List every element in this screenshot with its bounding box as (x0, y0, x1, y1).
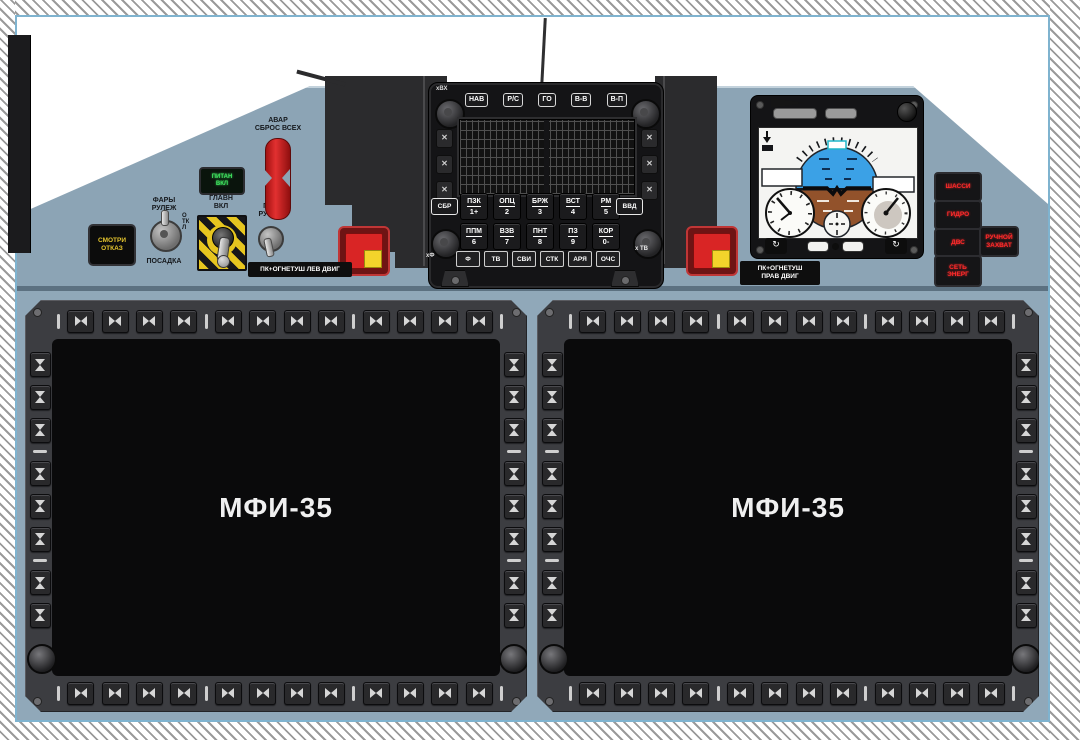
cage-knob-left[interactable]: ↻ (765, 238, 787, 254)
hud-support-rod (540, 18, 547, 86)
bezel-pin (57, 314, 60, 329)
bezel-pin (545, 450, 559, 453)
mode-button-vp[interactable]: В-П (607, 93, 627, 107)
instrument-knob[interactable] (897, 102, 917, 122)
bezel-button-glyph-icon (734, 316, 746, 326)
toggle-pill[interactable] (807, 241, 829, 252)
mfd-bezel-button[interactable] (978, 310, 1005, 333)
function-key-row: Ф ТВ СВИ СТК АРЯ ОЧС (456, 251, 620, 267)
label-xf: хФ (426, 253, 434, 259)
mfd-bezel-button[interactable] (136, 310, 163, 333)
bezel-button-glyph-icon (882, 688, 894, 698)
bezel-button-glyph-icon (75, 316, 87, 326)
fire-button-yellow-square (712, 250, 730, 268)
mfd-bezel-button[interactable] (30, 570, 51, 595)
emergency-jettison-handle[interactable] (262, 138, 292, 218)
select-button[interactable]: ✕ (641, 129, 658, 148)
mfd-bezel-button[interactable] (682, 310, 709, 333)
bezel-button-glyph-icon (587, 316, 599, 326)
mfd-bezel-button[interactable] (579, 682, 606, 705)
bezel-button-glyph-icon (916, 688, 928, 698)
bezel-pin (33, 559, 47, 562)
mfd-bezel-button[interactable] (102, 682, 129, 705)
bezel-button-glyph-icon (1021, 359, 1031, 371)
frame-border-right (1050, 0, 1080, 740)
screw (545, 697, 554, 706)
mfd-bezel-button[interactable] (542, 494, 563, 519)
mfd-display-right: МФИ-35 (537, 300, 1039, 712)
attitude-clock-altimeter-graphic (759, 128, 917, 238)
master-caution-label: СМОТРИ (98, 237, 126, 245)
keyboard-knob-mid-right[interactable] (633, 229, 663, 259)
fn-key-f[interactable]: Ф (456, 251, 480, 267)
fn-key-stk[interactable]: СТК (540, 251, 564, 267)
mfd-bezel-button[interactable] (504, 570, 525, 595)
bezel-button-glyph-icon (35, 533, 45, 545)
bezel-pin (717, 314, 720, 329)
mfd-bezel-button[interactable] (170, 310, 197, 333)
bezel-button-glyph-icon (803, 316, 815, 326)
fire-button-yellow-square (364, 250, 382, 268)
bezel-button-glyph-icon (837, 688, 849, 698)
landing-lights-switch-hub (160, 230, 168, 238)
mfd-bezel-button[interactable] (830, 310, 857, 333)
bezel-button-glyph-icon (178, 688, 190, 698)
bezel-button-glyph-icon (769, 688, 781, 698)
mfd-knob-left[interactable] (539, 644, 569, 674)
mfd-bezel-button[interactable] (727, 310, 754, 333)
bezel-pin (545, 559, 559, 562)
select-button[interactable]: ✕ (436, 129, 453, 148)
mfd-bezel-button[interactable] (67, 310, 94, 333)
bottom-toggle-group (807, 241, 864, 252)
mfd-bezel-button[interactable] (943, 310, 970, 333)
bezel-button-glyph-icon (547, 533, 557, 545)
fire-right-label: ПК+ОГНЕТУШПРАВ ДВИГ (740, 261, 820, 285)
screw (33, 308, 42, 317)
bezel-button-glyph-icon (439, 316, 451, 326)
bezel-button-glyph-icon (1021, 609, 1031, 621)
bezel-button-glyph-icon (404, 316, 416, 326)
bezel-pin (57, 686, 60, 701)
bezel-button-glyph-icon (882, 316, 894, 326)
knob-center (640, 108, 648, 116)
mfd-knob-right[interactable] (1011, 644, 1041, 674)
mfd-bezel-button[interactable] (30, 418, 51, 443)
handle-notch (282, 169, 290, 187)
warning-light-5: РУЧНОЙЗАХВАТ (979, 226, 1019, 257)
mfd-bezel-button[interactable] (215, 310, 242, 333)
mfd-bezel-button[interactable] (30, 461, 51, 486)
bezel-button-glyph-icon (509, 468, 519, 480)
bezel-button-glyph-icon (509, 577, 519, 589)
bezel-pin (569, 314, 572, 329)
bezel-button-glyph-icon (547, 359, 557, 371)
standby-instrument-cluster: ↻ ↻ (750, 95, 924, 259)
key-pnt-8[interactable]: ПНТ8 (526, 223, 554, 250)
frame-border-top (0, 0, 1080, 15)
panel-foot (611, 270, 639, 287)
screw (756, 246, 764, 254)
key-kor-0[interactable]: КОР0- (592, 223, 620, 250)
mfd-button-col-left (29, 352, 51, 628)
bezel-button-glyph-icon (35, 577, 45, 589)
toggle-dot (832, 243, 839, 250)
dot-matrix-display (459, 119, 635, 195)
mfd-button-row-top (569, 309, 1015, 333)
screw (512, 308, 521, 317)
mode-button-row: НАВ Р/С ГО В-В В-П (465, 93, 627, 107)
mfd-bezel-button[interactable] (1016, 494, 1037, 519)
data-entry-keyboard-panel: хВХ НАВ Р/С ГО В-В В-П ✕ ✕ ✕ ✕ ✕ ✕ (428, 82, 664, 289)
mfd-bezel-button[interactable] (1016, 570, 1037, 595)
mfd-bezel-button[interactable] (614, 682, 641, 705)
mfd-bezel-button[interactable] (542, 527, 563, 552)
bezel-button-glyph-icon (222, 316, 234, 326)
bezel-button-glyph-icon (509, 424, 519, 436)
mfd-bezel-button[interactable] (504, 603, 525, 628)
pointer-flag-icon (771, 98, 805, 108)
bezel-pin (507, 559, 521, 562)
mode-button-rs[interactable]: Р/С (503, 93, 523, 107)
bezel-pin (507, 450, 521, 453)
mfd-bezel-button[interactable] (542, 385, 563, 410)
bezel-button-glyph-icon (257, 316, 269, 326)
screw (1024, 308, 1033, 317)
mfd-bezel-button[interactable] (542, 603, 563, 628)
mfd-bezel-button[interactable] (363, 682, 390, 705)
bezel-pin (1012, 686, 1015, 701)
bezel-pin (33, 450, 47, 453)
bezel-button-glyph-icon (75, 688, 87, 698)
mfd-screen: МФИ-35 (52, 339, 500, 676)
fn-key-tv[interactable]: ТВ (484, 251, 508, 267)
mfd-bezel-button[interactable] (909, 310, 936, 333)
mfd-bezel-button[interactable] (727, 682, 754, 705)
bezel-button-glyph-icon (1021, 468, 1031, 480)
landing-label: ПОСАДКА (138, 258, 190, 266)
key-pzk-1[interactable]: ПЗК1+ (460, 193, 488, 220)
mfd-bezel-button[interactable] (30, 352, 51, 377)
bezel-button-glyph-icon (509, 500, 519, 512)
mfd-bezel-button[interactable] (170, 682, 197, 705)
bezel-button-glyph-icon (803, 688, 815, 698)
mfd-bezel-button[interactable] (397, 310, 424, 333)
bezel-button-glyph-icon (325, 316, 337, 326)
bezel-button-glyph-icon (769, 316, 781, 326)
mfd-bezel-button[interactable] (1016, 527, 1037, 552)
bezel-pin (205, 314, 208, 329)
mode-button-go[interactable]: ГО (538, 93, 555, 107)
bezel-button-glyph-icon (257, 688, 269, 698)
bezel-button-glyph-icon (837, 316, 849, 326)
mfd-display-left: МФИ-35 (25, 300, 527, 712)
mfd-bezel-button[interactable] (504, 527, 525, 552)
handle-notch (264, 169, 272, 187)
mfd-bezel-button[interactable] (504, 418, 525, 443)
mfd-bezel-button[interactable] (909, 682, 936, 705)
bezel-button-glyph-icon (1021, 424, 1031, 436)
bezel-button-glyph-icon (473, 688, 485, 698)
bezel-button-glyph-icon (655, 688, 667, 698)
mfd-button-col-left (541, 352, 563, 628)
select-button[interactable]: ✕ (641, 181, 658, 200)
number-row-2: ППМ6 ВЗВ7 ПНТ8 ПЗ9 КОР0- (460, 223, 620, 250)
mfd-bezel-button[interactable] (579, 310, 606, 333)
mfd-bezel-button[interactable] (614, 310, 641, 333)
bezel-button-glyph-icon (734, 688, 746, 698)
mfd-bezel-button[interactable] (978, 682, 1005, 705)
mfd-title: МФИ-35 (731, 492, 845, 524)
panel-foot (441, 270, 469, 287)
key-pz-9[interactable]: ПЗ9 (559, 223, 587, 250)
mfd-bezel-button[interactable] (102, 310, 129, 333)
bezel-button-glyph-icon (35, 500, 45, 512)
power-on-annunciator: ПИТАН ВКЛ (199, 167, 245, 195)
mfd-button-row-top (57, 309, 503, 333)
mfd-screen: МФИ-35 (564, 339, 1012, 676)
mfd-bezel-button[interactable] (363, 310, 390, 333)
mfd-bezel-button[interactable] (796, 682, 823, 705)
bezel-button-glyph-icon (370, 688, 382, 698)
bezel-pin (864, 314, 867, 329)
bezel-button-glyph-icon (547, 468, 557, 480)
bezel-button-glyph-icon (178, 316, 190, 326)
bezel-button-glyph-icon (509, 533, 519, 545)
right-select-buttons: ✕ ✕ ✕ (641, 129, 658, 200)
bezel-button-glyph-icon (222, 688, 234, 698)
mfd-button-row-bottom (57, 681, 503, 705)
bezel-button-glyph-icon (325, 688, 337, 698)
screw (910, 246, 918, 254)
warning-light-3: ДВС (934, 228, 982, 257)
bezel-pin (1019, 450, 1033, 453)
bezel-button-glyph-icon (621, 316, 633, 326)
bezel-button-glyph-icon (587, 688, 599, 698)
mfd-bezel-button[interactable] (943, 682, 970, 705)
mfd-bezel-button[interactable] (249, 682, 276, 705)
key-brzh-3[interactable]: БРЖ3 (526, 193, 554, 220)
bezel-pin (500, 686, 503, 701)
mfd-bezel-button[interactable] (318, 682, 345, 705)
bezel-pin (500, 314, 503, 329)
master-caution-button[interactable]: СМОТРИ ОТКАЗ (88, 224, 136, 266)
mfd-bezel-button[interactable] (648, 682, 675, 705)
mfd-bezel-button[interactable] (397, 682, 424, 705)
mfd-button-col-right (1015, 352, 1037, 628)
left-select-buttons: ✕ ✕ ✕ (436, 129, 453, 200)
bezel-pin (1012, 314, 1015, 329)
bezel-button-glyph-icon (655, 316, 667, 326)
mfd-bezel-button[interactable] (284, 310, 311, 333)
mfd-title: МФИ-35 (219, 492, 333, 524)
mfd-bezel-button[interactable] (67, 682, 94, 705)
bezel-button-glyph-icon (985, 316, 997, 326)
screw (545, 308, 554, 317)
mfd-bezel-button[interactable] (542, 352, 563, 377)
enter-key[interactable]: ВВД (616, 198, 643, 215)
mfd-bezel-button[interactable] (761, 310, 788, 333)
bezel-button-glyph-icon (35, 424, 45, 436)
select-button[interactable]: ✕ (641, 155, 658, 174)
master-caution-label: ОТКАЗ (101, 245, 123, 253)
mfd-bezel-button[interactable] (504, 461, 525, 486)
bezel-button-glyph-icon (690, 688, 702, 698)
mfd-bezel-button[interactable] (1016, 461, 1037, 486)
keyboard-knob-top-right[interactable] (631, 99, 661, 129)
warning-light-4: СЕТЬЭНЕРГ (934, 255, 982, 287)
mfd-bezel-button[interactable] (30, 494, 51, 519)
bezel-button-glyph-icon (291, 316, 303, 326)
mfd-bezel-button[interactable] (1016, 603, 1037, 628)
key-vzv-7[interactable]: ВЗВ7 (493, 223, 521, 250)
bezel-button-glyph-icon (509, 359, 519, 371)
mfd-bezel-button[interactable] (30, 603, 51, 628)
bezel-button-glyph-icon (404, 688, 416, 698)
landing-lights-switch-lever[interactable] (161, 210, 169, 226)
main-power-switch-tip[interactable] (217, 255, 230, 268)
mfd-bezel-button[interactable] (1016, 385, 1037, 410)
mfd-bezel-button[interactable] (542, 570, 563, 595)
mfd-bezel-button[interactable] (284, 682, 311, 705)
bezel-button-glyph-icon (1021, 500, 1031, 512)
knob-center (642, 238, 650, 246)
mfd-bezel-button[interactable] (466, 682, 493, 705)
main-power-switch[interactable] (197, 215, 247, 271)
mfd-bezel-button[interactable] (761, 682, 788, 705)
bezel-button-glyph-icon (690, 316, 702, 326)
warning-light-2: ГИДРО (934, 200, 982, 230)
mfd-bezel-button[interactable] (431, 310, 458, 333)
bezel-button-glyph-icon (35, 359, 45, 371)
main-switch-label: ГЛАВНВКЛ (196, 195, 246, 211)
bezel-button-glyph-icon (951, 316, 963, 326)
mfd-bezel-button[interactable] (30, 527, 51, 552)
key-ppm-6[interactable]: ППМ6 (460, 223, 488, 250)
warning-light-1: ШАССИ (934, 172, 982, 202)
label-xtv: х ТВ (635, 246, 648, 252)
bezel-button-glyph-icon (143, 688, 155, 698)
bezel-button-glyph-icon (547, 609, 557, 621)
mfd-bezel-button[interactable] (796, 310, 823, 333)
select-button[interactable]: ✕ (436, 155, 453, 174)
key-opc-2[interactable]: ОПЦ2 (493, 193, 521, 220)
emergency-jettison-label: АВАРСБРОС ВСЕХ (240, 117, 316, 133)
mfd-knob-right[interactable] (499, 644, 529, 674)
mfd-bezel-button[interactable] (504, 352, 525, 377)
cage-knob-right[interactable]: ↻ (885, 238, 907, 254)
mfd-bezel-button[interactable] (830, 682, 857, 705)
bezel-pin (352, 686, 355, 701)
mfd-bezel-button[interactable] (249, 310, 276, 333)
mfd-bezel-button[interactable] (542, 461, 563, 486)
mfd-bezel-button[interactable] (648, 310, 675, 333)
mfd-bezel-button[interactable] (542, 418, 563, 443)
bezel-button-glyph-icon (1021, 391, 1031, 403)
mfd-bezel-button[interactable] (504, 385, 525, 410)
fire-left-label: ПК+ОГНЕТУШ ЛЕВ ДВИГ (248, 262, 352, 277)
mode-button-nav[interactable]: НАВ (465, 93, 488, 107)
bezel-pin (717, 686, 720, 701)
knob-center (440, 238, 448, 246)
cockpit-edge-structure (8, 35, 31, 253)
fire-extinguisher-button-right[interactable] (686, 226, 738, 276)
canopy-seam (423, 76, 425, 266)
bezel-button-glyph-icon (473, 316, 485, 326)
bezel-button-glyph-icon (547, 577, 557, 589)
bezel-button-glyph-icon (1021, 533, 1031, 545)
bezel-button-glyph-icon (35, 468, 45, 480)
mfd-bezel-button[interactable] (875, 310, 902, 333)
screw (756, 101, 764, 109)
mfd-bezel-button[interactable] (1016, 352, 1037, 377)
bezel-button-glyph-icon (547, 500, 557, 512)
mfd-knob-left[interactable] (27, 644, 57, 674)
mfd-bezel-button[interactable] (875, 682, 902, 705)
bezel-pin (352, 314, 355, 329)
bezel-button-glyph-icon (985, 688, 997, 698)
fn-key-ochs[interactable]: ОЧС (596, 251, 620, 267)
mfd-bezel-button[interactable] (431, 682, 458, 705)
fn-key-svi[interactable]: СВИ (512, 251, 536, 267)
cockpit-panel-diagram: СМОТРИ ОТКАЗ ФАРЫРУЛЕЖ ОТКЛ ПОСАДКА ПИТА… (0, 0, 1080, 740)
bezel-button-glyph-icon (35, 391, 45, 403)
bezel-button-glyph-icon (35, 609, 45, 621)
bezel-button-glyph-icon (509, 609, 519, 621)
bezel-button-glyph-icon (1021, 577, 1031, 589)
mfd-bezel-button[interactable] (504, 494, 525, 519)
bezel-button-glyph-icon (951, 688, 963, 698)
top-button-right[interactable] (825, 108, 857, 119)
bezel-button-glyph-icon (547, 424, 557, 436)
lights-off-label: ОТКЛ (182, 213, 190, 231)
mfd-button-row-bottom (569, 681, 1015, 705)
mfd-bezel-button[interactable] (215, 682, 242, 705)
screw (621, 276, 630, 285)
bezel-button-glyph-icon (916, 316, 928, 326)
mfd-bezel-button[interactable] (136, 682, 163, 705)
frame-border-bottom (0, 722, 1080, 740)
mfd-bezel-button[interactable] (30, 385, 51, 410)
clear-key[interactable]: СБР (431, 198, 458, 215)
mfd-bezel-button[interactable] (466, 310, 493, 333)
bezel-button-glyph-icon (509, 391, 519, 403)
screw (451, 276, 460, 285)
fn-key-arya[interactable]: АРЯ (568, 251, 592, 267)
mfd-bezel-button[interactable] (1016, 418, 1037, 443)
mfd-bezel-button[interactable] (318, 310, 345, 333)
bezel-button-glyph-icon (291, 688, 303, 698)
number-row-1: ПЗК1+ ОПЦ2 БРЖ3 ВСТ4 РМ5 (460, 193, 620, 220)
bezel-pin (205, 686, 208, 701)
mfd-button-col-right (503, 352, 525, 628)
toggle-pill[interactable] (842, 241, 864, 252)
bezel-button-glyph-icon (109, 316, 121, 326)
bezel-button-glyph-icon (621, 688, 633, 698)
bezel-button-glyph-icon (547, 391, 557, 403)
bezel-button-glyph-icon (439, 688, 451, 698)
knob-center (444, 108, 452, 116)
bezel-button-glyph-icon (143, 316, 155, 326)
mode-button-vv[interactable]: В-В (571, 93, 591, 107)
key-vst-4[interactable]: ВСТ4 (559, 193, 587, 220)
mfd-bezel-button[interactable] (682, 682, 709, 705)
bezel-pin (864, 686, 867, 701)
bezel-button-glyph-icon (370, 316, 382, 326)
screw (33, 697, 42, 706)
top-button-left[interactable] (773, 108, 817, 119)
keyboard-corner-label: хВХ (436, 86, 447, 92)
